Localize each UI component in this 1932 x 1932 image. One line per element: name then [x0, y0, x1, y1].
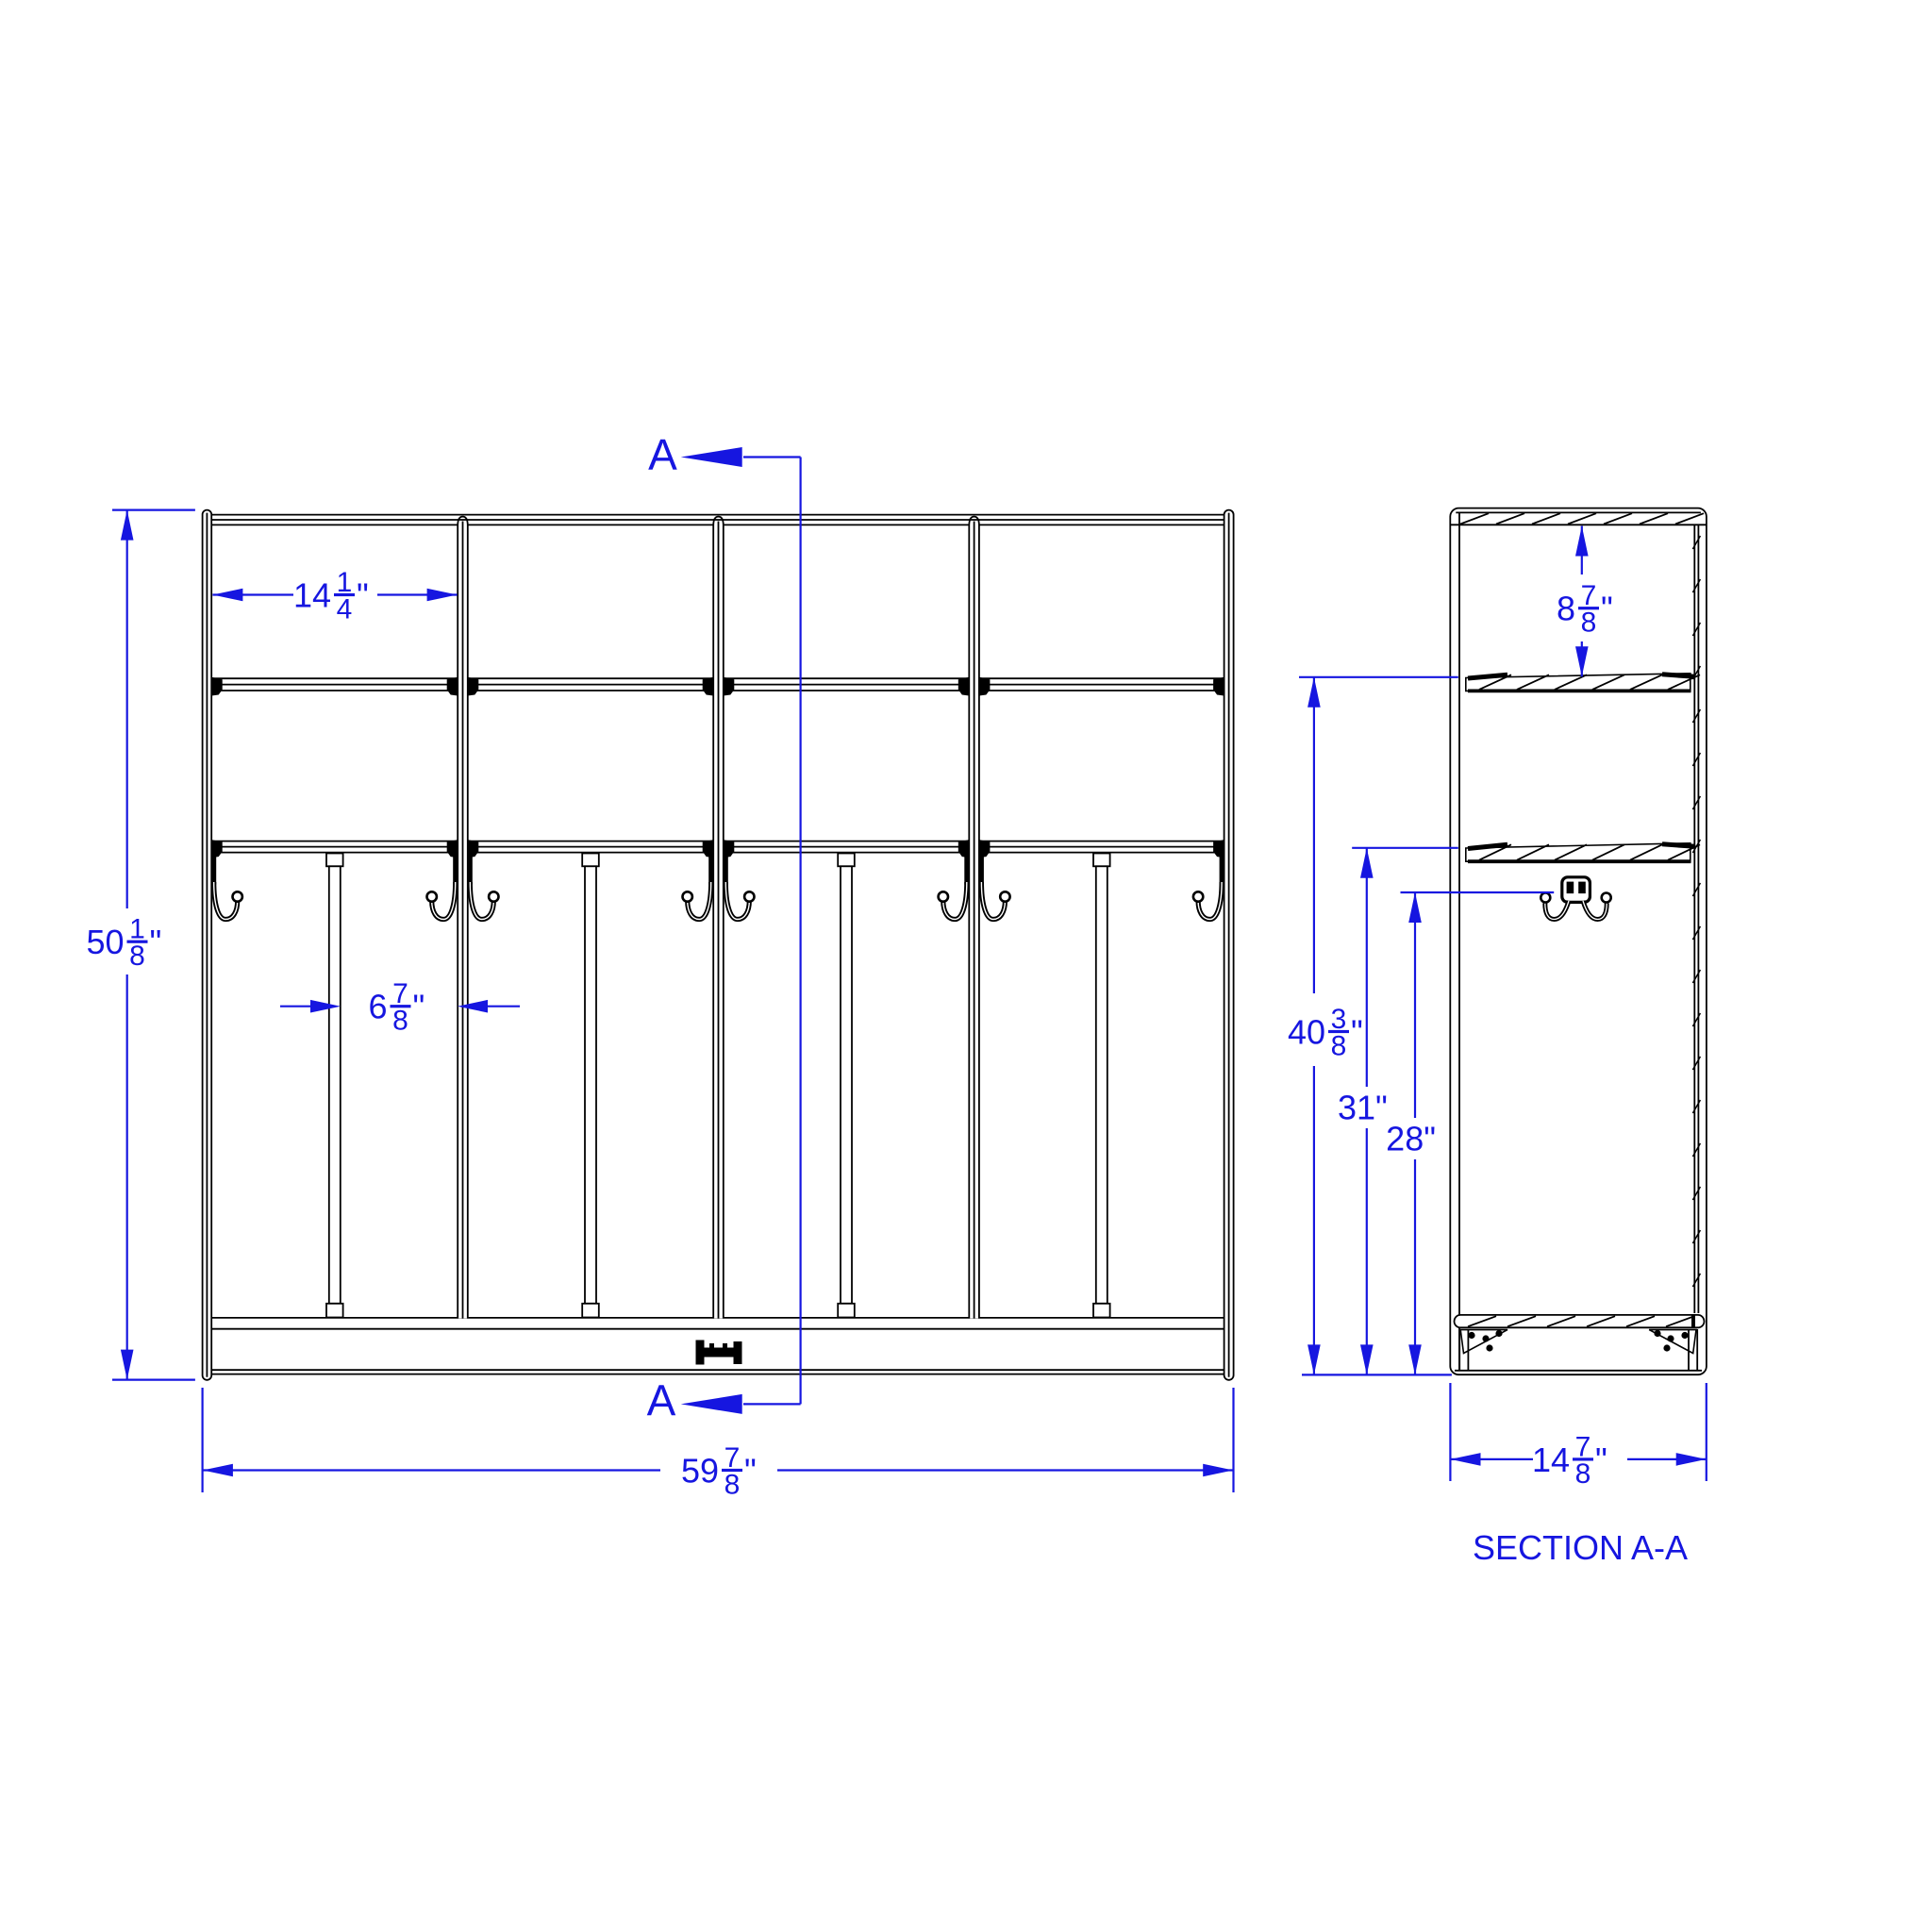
svg-text:28": 28"	[1386, 1119, 1436, 1158]
svg-text:": "	[1595, 1441, 1607, 1479]
svg-text:8: 8	[724, 1470, 741, 1501]
svg-text:A: A	[648, 430, 677, 479]
svg-text:8: 8	[1331, 1031, 1347, 1062]
svg-text:A: A	[647, 1376, 676, 1425]
svg-text:": "	[1351, 1013, 1363, 1052]
svg-text:14: 14	[293, 576, 331, 615]
svg-text:": "	[150, 923, 162, 961]
svg-text:59: 59	[681, 1452, 719, 1491]
svg-text:50: 50	[86, 923, 124, 961]
svg-text:": "	[357, 576, 369, 615]
svg-text:8: 8	[392, 1006, 408, 1037]
svg-text:6: 6	[368, 988, 387, 1026]
svg-text:8: 8	[1581, 608, 1597, 639]
svg-text:8: 8	[129, 941, 145, 972]
svg-text:": "	[1601, 590, 1613, 628]
svg-text:8: 8	[1557, 590, 1575, 628]
svg-text:31": 31"	[1338, 1089, 1388, 1127]
svg-text:": "	[413, 988, 425, 1026]
svg-text:4: 4	[337, 594, 353, 625]
svg-text:8: 8	[1575, 1458, 1591, 1490]
svg-text:40: 40	[1288, 1013, 1325, 1052]
svg-text:": "	[744, 1452, 757, 1491]
svg-text:SECTION A-A: SECTION A-A	[1473, 1528, 1688, 1567]
svg-text:14: 14	[1532, 1441, 1570, 1479]
